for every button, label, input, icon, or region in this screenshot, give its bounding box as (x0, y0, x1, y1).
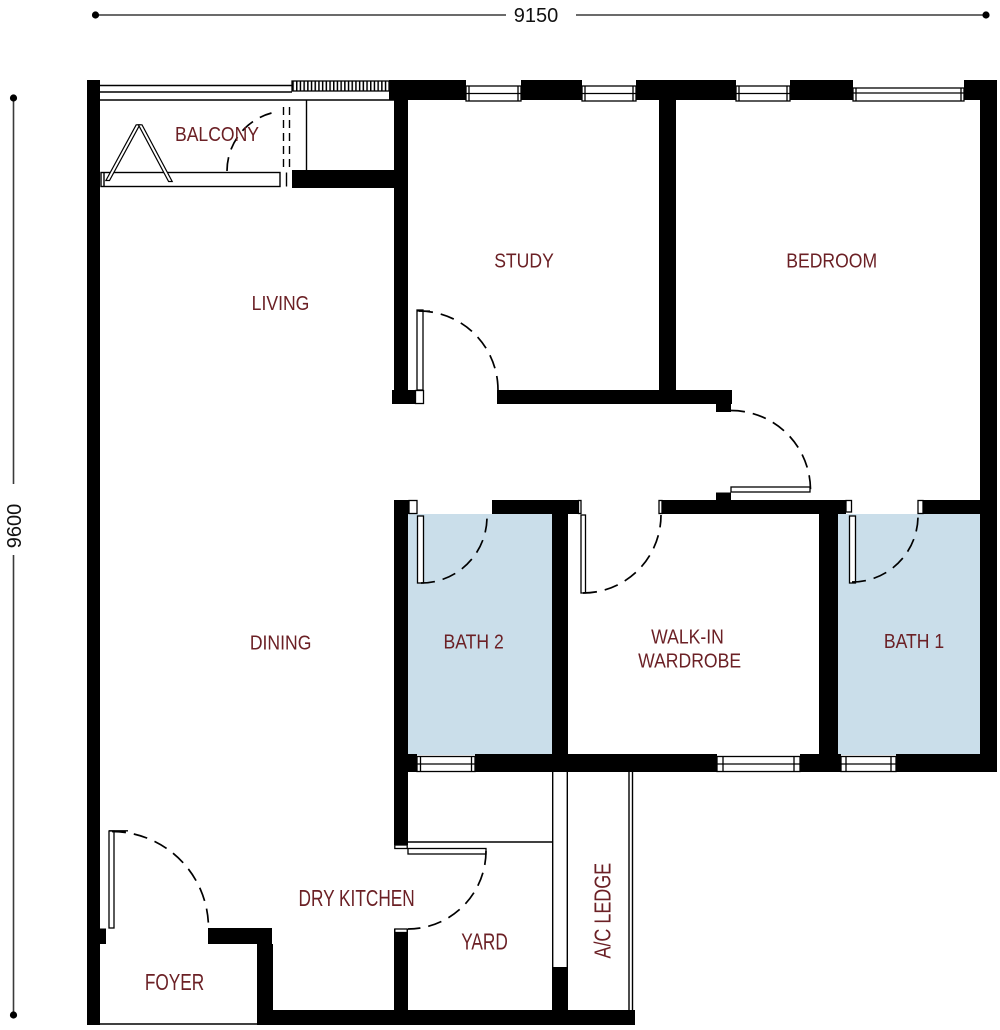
svg-text:DINING: DINING (250, 631, 312, 653)
svg-text:DRY KITCHEN: DRY KITCHEN (298, 887, 414, 912)
svg-text:BALCONY: BALCONY (175, 123, 259, 145)
svg-text:STUDY: STUDY (494, 249, 554, 271)
svg-text:YARD: YARD (461, 930, 508, 955)
svg-text:WALK-IN: WALK-IN (651, 625, 724, 647)
svg-text:BATH 2: BATH 2 (443, 630, 503, 652)
svg-text:9150: 9150 (514, 5, 559, 27)
svg-text:9600: 9600 (4, 504, 26, 549)
svg-text:BATH 1: BATH 1 (884, 630, 944, 652)
svg-text:A/C LEDGE: A/C LEDGE (590, 863, 616, 959)
svg-text:WARDROBE: WARDROBE (638, 649, 741, 671)
svg-text:LIVING: LIVING (252, 292, 310, 314)
svg-text:FOYER: FOYER (145, 971, 204, 996)
svg-text:BEDROOM: BEDROOM (786, 249, 877, 271)
